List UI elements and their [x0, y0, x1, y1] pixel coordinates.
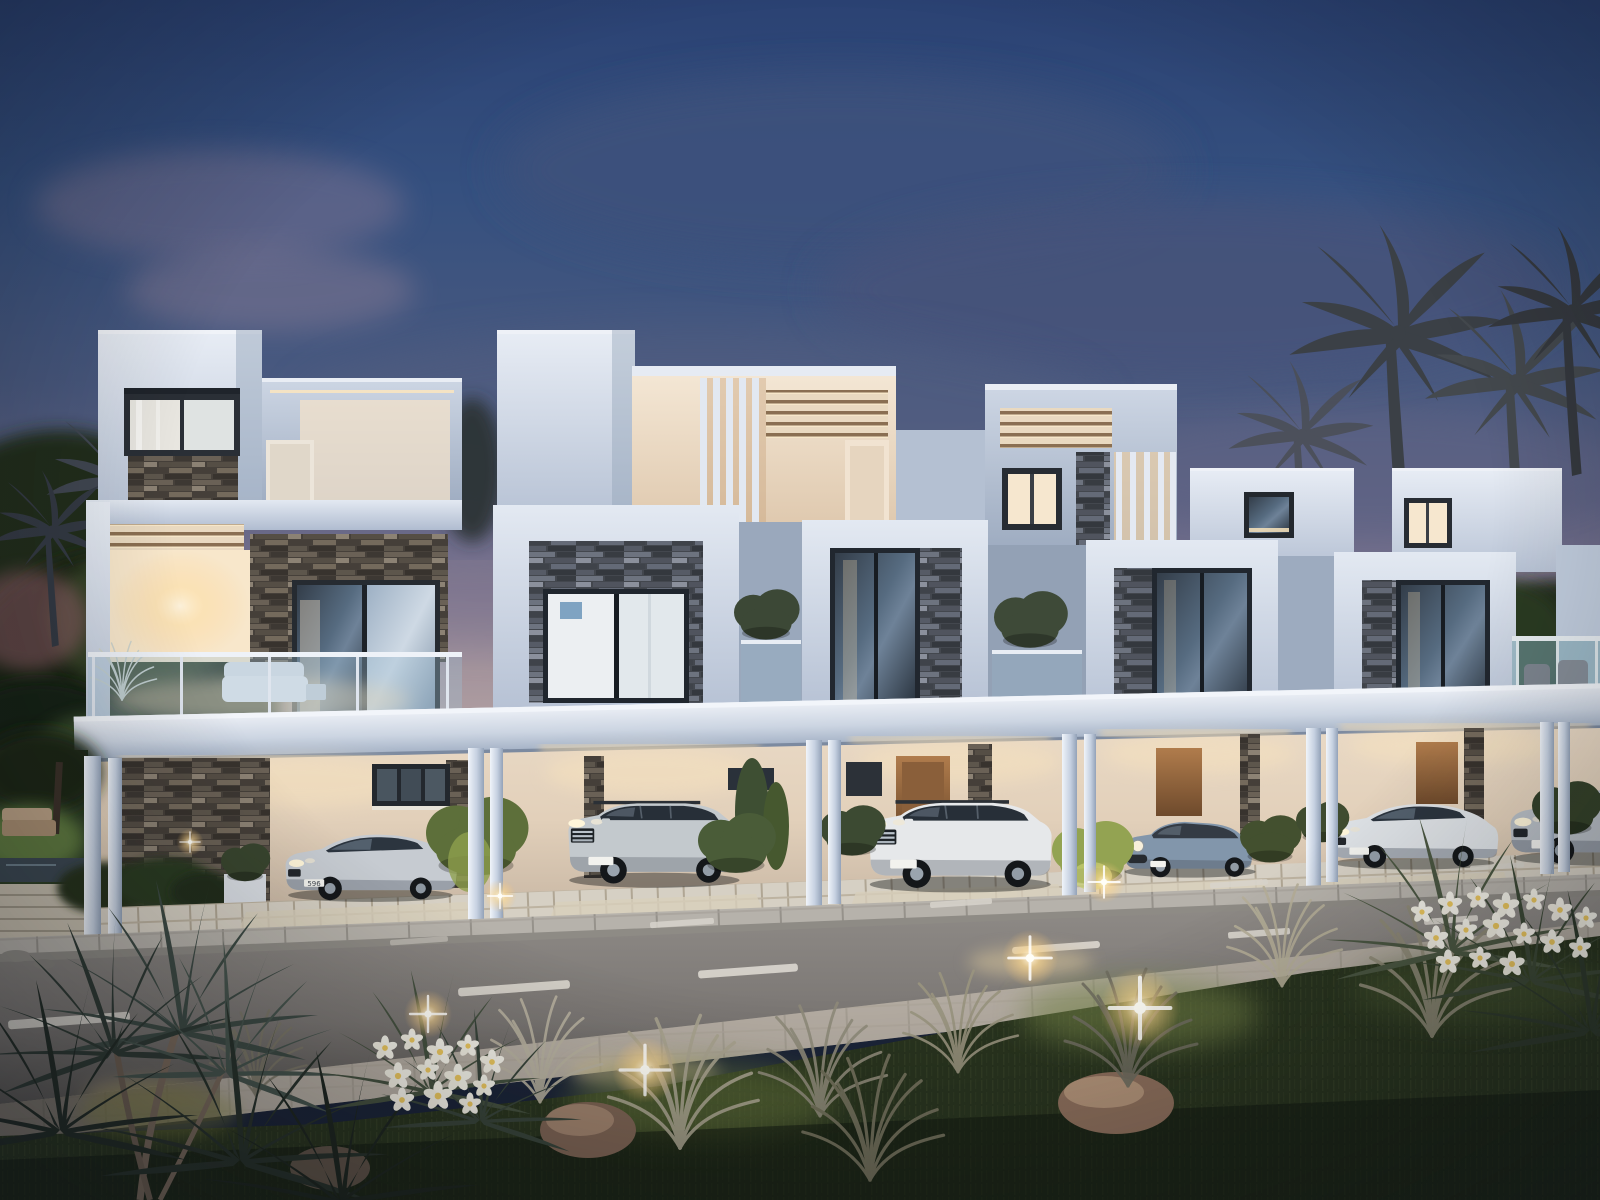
frame-window: [543, 589, 689, 703]
rear-window: [1244, 492, 1294, 538]
plumeria-center-flowering: [320, 970, 593, 1152]
balcony-glass-railing: [88, 652, 462, 727]
car-mercedes-suv: [568, 803, 740, 888]
car-range-rover: [869, 802, 1052, 892]
backdrop-vegetation: [0, 225, 1600, 1000]
right-foliage: [1430, 580, 1600, 1000]
lawn: [0, 936, 1600, 1200]
balcony-plant: [91, 642, 157, 701]
sky: [0, 0, 1600, 760]
villa-1-balcony-level: [86, 500, 462, 748]
vignette: [0, 0, 1600, 1200]
bay-5-door: [1416, 742, 1458, 804]
plumeria-flowers: [1410, 887, 1598, 978]
carport-columns: [84, 722, 1570, 946]
balcony-sofa: [222, 662, 326, 702]
stone-surround: [529, 541, 703, 703]
palm-tree-mid: [849, 531, 959, 697]
near-sidewalk: [0, 922, 1600, 1142]
villa-4-tower: [985, 384, 1177, 564]
wood-deck: [0, 884, 92, 944]
bay-3-entry: [846, 756, 950, 836]
car-mini-cooper: [1125, 822, 1256, 878]
clouds: [35, 75, 1600, 645]
soffit-light-strips: [120, 725, 1590, 762]
carport-slab: [74, 683, 1600, 762]
lane-dashes-near: [8, 915, 1478, 1029]
car-partial-right: [1511, 790, 1600, 866]
villa-5-terrace: [1512, 636, 1600, 717]
villa-5-frame-box: [1334, 552, 1516, 748]
plumeria-right-flowering: [1317, 807, 1600, 1058]
right-palm-cluster: [1229, 225, 1600, 579]
loggia-fins: [1116, 452, 1176, 564]
silver-grass-tufts: [210, 885, 1510, 1180]
curb: [0, 890, 1600, 964]
garden-daybed: [2, 808, 52, 822]
hedge: [57, 858, 239, 914]
palm-tree-mid-2: [999, 560, 1096, 706]
villa-2-tower: [497, 330, 635, 510]
frame-window: [830, 548, 920, 708]
stone-accent-wall: [250, 534, 448, 662]
villa-5-rear-volume: [1190, 468, 1354, 564]
frame-window: [1396, 580, 1490, 720]
cypress: [763, 782, 789, 870]
stone-accent: [128, 456, 238, 514]
lit-louver-soffit: [110, 524, 244, 552]
villa-3-frame-box: [802, 520, 988, 736]
tower-window: [124, 388, 240, 456]
carport-shrubs: [426, 758, 1600, 892]
carport-stone-wall: [110, 758, 270, 908]
street: [0, 862, 1600, 1142]
rear-door: [266, 440, 314, 510]
villa-6-rear-volume: [1392, 468, 1600, 707]
left-tree-mass: [0, 430, 280, 960]
townhouse-row: [86, 330, 1600, 748]
license-plate: 596: [307, 880, 321, 888]
stone-accent: [1114, 568, 1152, 718]
terrace-chair: [1524, 664, 1550, 698]
driveway: [88, 852, 1600, 958]
rocks: [1, 950, 1174, 1190]
terrace-chair: [1558, 660, 1588, 698]
recess-4-5: [1278, 556, 1334, 742]
bay-1-window: [372, 764, 450, 810]
tower-door: [845, 440, 889, 534]
road: [0, 896, 1600, 1106]
carport: [0, 726, 1600, 946]
plumeria-left-large: [0, 880, 478, 1200]
stone-accent: [1076, 452, 1110, 552]
car-audi-sedan: [1331, 804, 1498, 869]
plumeria-flowers: [372, 1029, 506, 1116]
foreground-landscape: [0, 807, 1600, 1200]
balcony-sliding-door: [292, 580, 440, 722]
garden-uplights: [177, 829, 1181, 1104]
villa-3-tower-warm: [632, 366, 896, 540]
lane-dashes-far: [390, 862, 1524, 945]
bay-4-door: [1156, 748, 1202, 816]
recess-2-3: [734, 522, 803, 738]
stone-strips: [446, 728, 1484, 888]
palm-tree-left: [47, 407, 192, 625]
bay-2-window: [728, 768, 774, 790]
sidewalk: [0, 874, 1600, 956]
pool-water: [0, 858, 86, 882]
palm-tree-left-2: [0, 470, 110, 647]
tower-window-lit: [1002, 468, 1062, 530]
stone-accent: [1362, 580, 1396, 720]
car-bmw-sedan: [286, 835, 457, 902]
cypress: [735, 758, 769, 866]
stone-accent: [920, 548, 962, 708]
villa-1-tower: [98, 330, 262, 514]
villa-2-frame-box: [493, 505, 739, 739]
villa-4-frame-box: [1086, 540, 1278, 746]
lit-louver-soffit: [766, 390, 888, 438]
recess-3-4: [988, 545, 1086, 737]
parked-cars: 596: [286, 790, 1600, 902]
vertical-fins: [700, 378, 759, 536]
left-garden: [0, 730, 102, 946]
mid-parapet: [896, 430, 986, 552]
rear-window-lit: [1404, 498, 1452, 548]
frame-window: [1152, 568, 1252, 718]
white-planter: [221, 843, 270, 916]
dusk-townhouse-render: 596: [0, 0, 1600, 1200]
villa-1-rear-volume: [262, 378, 462, 510]
